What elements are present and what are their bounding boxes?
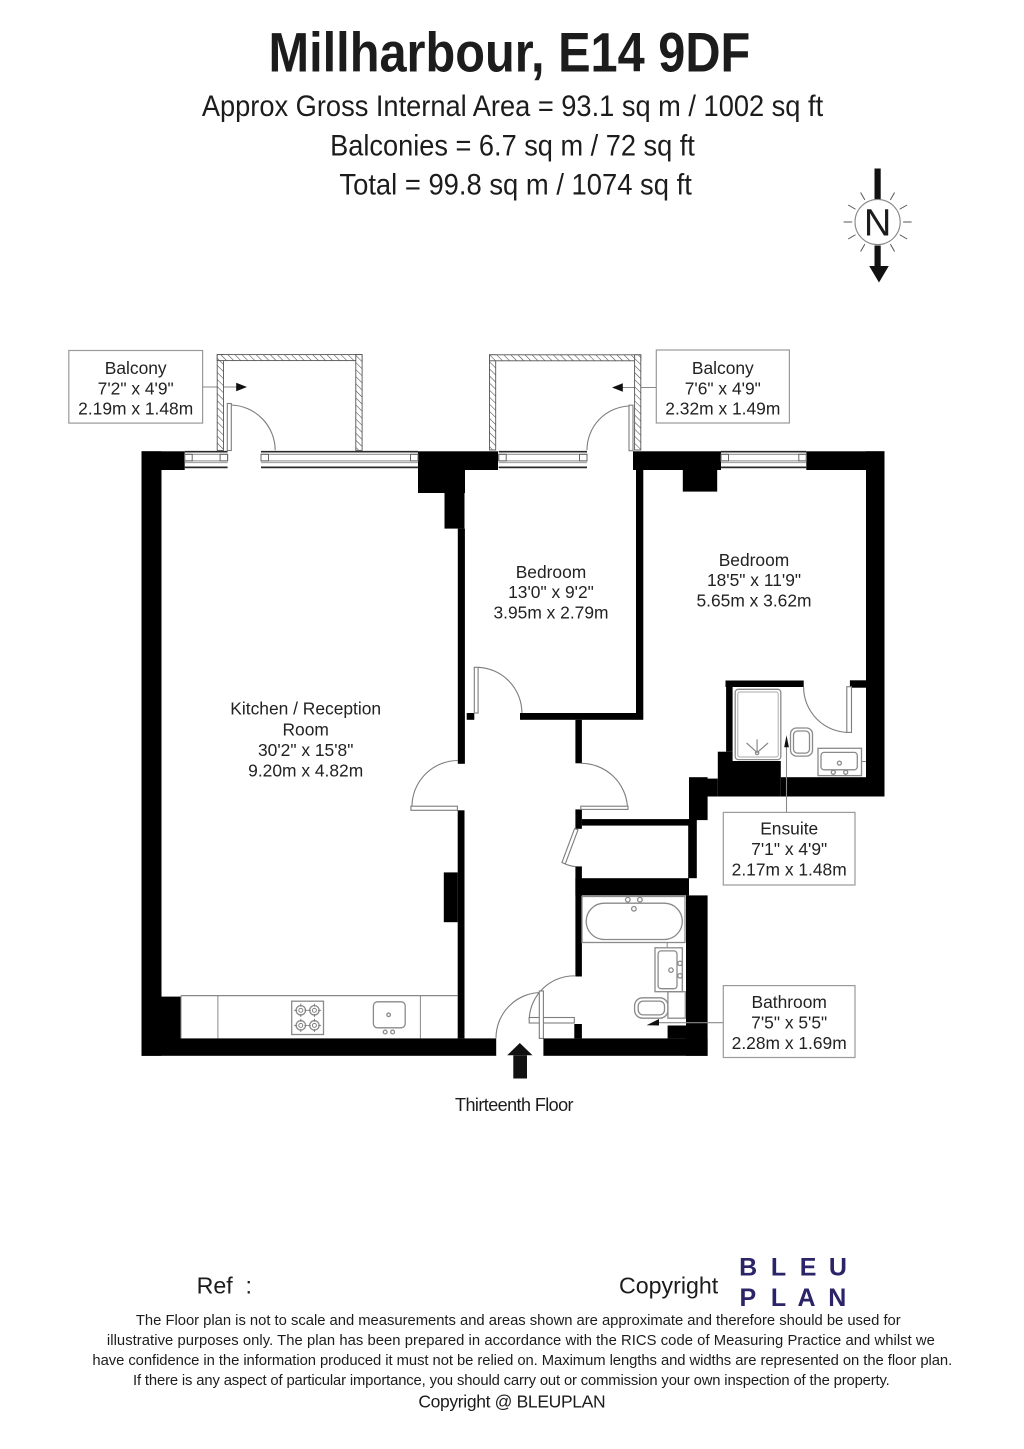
svg-text:Balcony: Balcony bbox=[105, 358, 167, 378]
svg-text:N: N bbox=[864, 203, 891, 245]
svg-text:The Floor plan is not to scale: The Floor plan is not to scale and measu… bbox=[136, 1313, 901, 1329]
svg-text:L: L bbox=[771, 1254, 786, 1282]
svg-text:2.28m x 1.69m: 2.28m x 1.69m bbox=[732, 1033, 847, 1053]
svg-text:7'2" x 4'9": 7'2" x 4'9" bbox=[98, 378, 174, 398]
svg-text:7'5" x 5'5": 7'5" x 5'5" bbox=[751, 1012, 827, 1032]
svg-text:Bathroom: Bathroom bbox=[751, 992, 826, 1012]
svg-text:18'5" x 11'9": 18'5" x 11'9" bbox=[707, 570, 801, 590]
svg-text:Bedroom: Bedroom bbox=[719, 550, 790, 570]
svg-text:7'6" x 4'9": 7'6" x 4'9" bbox=[685, 378, 761, 398]
svg-text:illustrative purposes only. Th: illustrative purposes only. The plan has… bbox=[107, 1333, 935, 1349]
svg-text:Room: Room bbox=[283, 720, 329, 740]
svg-text:Balcony: Balcony bbox=[692, 358, 754, 378]
svg-text:Copyright @ BLEUPLAN: Copyright @ BLEUPLAN bbox=[418, 1391, 605, 1411]
svg-text:L: L bbox=[771, 1284, 786, 1312]
svg-text:If there is any aspect of part: If there is any aspect of particular imp… bbox=[133, 1373, 890, 1389]
svg-text:Total = 99.8 sq m / 1074 sq ft: Total = 99.8 sq m / 1074 sq ft bbox=[339, 168, 691, 201]
svg-text:2.19m x 1.48m: 2.19m x 1.48m bbox=[78, 399, 193, 419]
svg-text:3.95m x 2.79m: 3.95m x 2.79m bbox=[493, 603, 608, 623]
svg-text:2.32m x 1.49m: 2.32m x 1.49m bbox=[665, 399, 780, 419]
svg-text:Ensuite: Ensuite bbox=[760, 818, 818, 838]
svg-text:Balconies = 6.7 sq m / 72 sq f: Balconies = 6.7 sq m / 72 sq ft bbox=[330, 129, 695, 163]
svg-text:Approx Gross Internal Area = 9: Approx Gross Internal Area = 93.1 sq m /… bbox=[202, 90, 823, 124]
svg-text:Bedroom: Bedroom bbox=[516, 562, 587, 582]
svg-text:U: U bbox=[829, 1254, 847, 1282]
svg-text:P: P bbox=[739, 1284, 756, 1312]
svg-text:have confidence in the informa: have confidence in the information produ… bbox=[92, 1353, 952, 1369]
svg-text:Millharbour, E14 9DF: Millharbour, E14 9DF bbox=[269, 21, 751, 84]
svg-text:A: A bbox=[797, 1284, 815, 1312]
svg-text:E: E bbox=[800, 1254, 817, 1282]
svg-text:Ref :: Ref : bbox=[197, 1273, 252, 1299]
svg-text:N: N bbox=[828, 1284, 846, 1312]
svg-text:2.17m x 1.48m: 2.17m x 1.48m bbox=[732, 859, 847, 879]
svg-text:30'2" x 15'8": 30'2" x 15'8" bbox=[258, 740, 353, 760]
svg-text:Thirteenth Floor: Thirteenth Floor bbox=[455, 1095, 574, 1115]
svg-text:Kitchen / Reception: Kitchen / Reception bbox=[230, 698, 381, 718]
svg-text:Copyright: Copyright bbox=[619, 1273, 719, 1299]
svg-text:7'1" x 4'9": 7'1" x 4'9" bbox=[751, 839, 827, 859]
svg-text:5.65m x 3.62m: 5.65m x 3.62m bbox=[696, 590, 811, 610]
svg-text:9.20m x 4.82m: 9.20m x 4.82m bbox=[248, 760, 363, 780]
svg-text:B: B bbox=[739, 1254, 757, 1282]
svg-text:13'0" x 9'2": 13'0" x 9'2" bbox=[508, 582, 594, 602]
